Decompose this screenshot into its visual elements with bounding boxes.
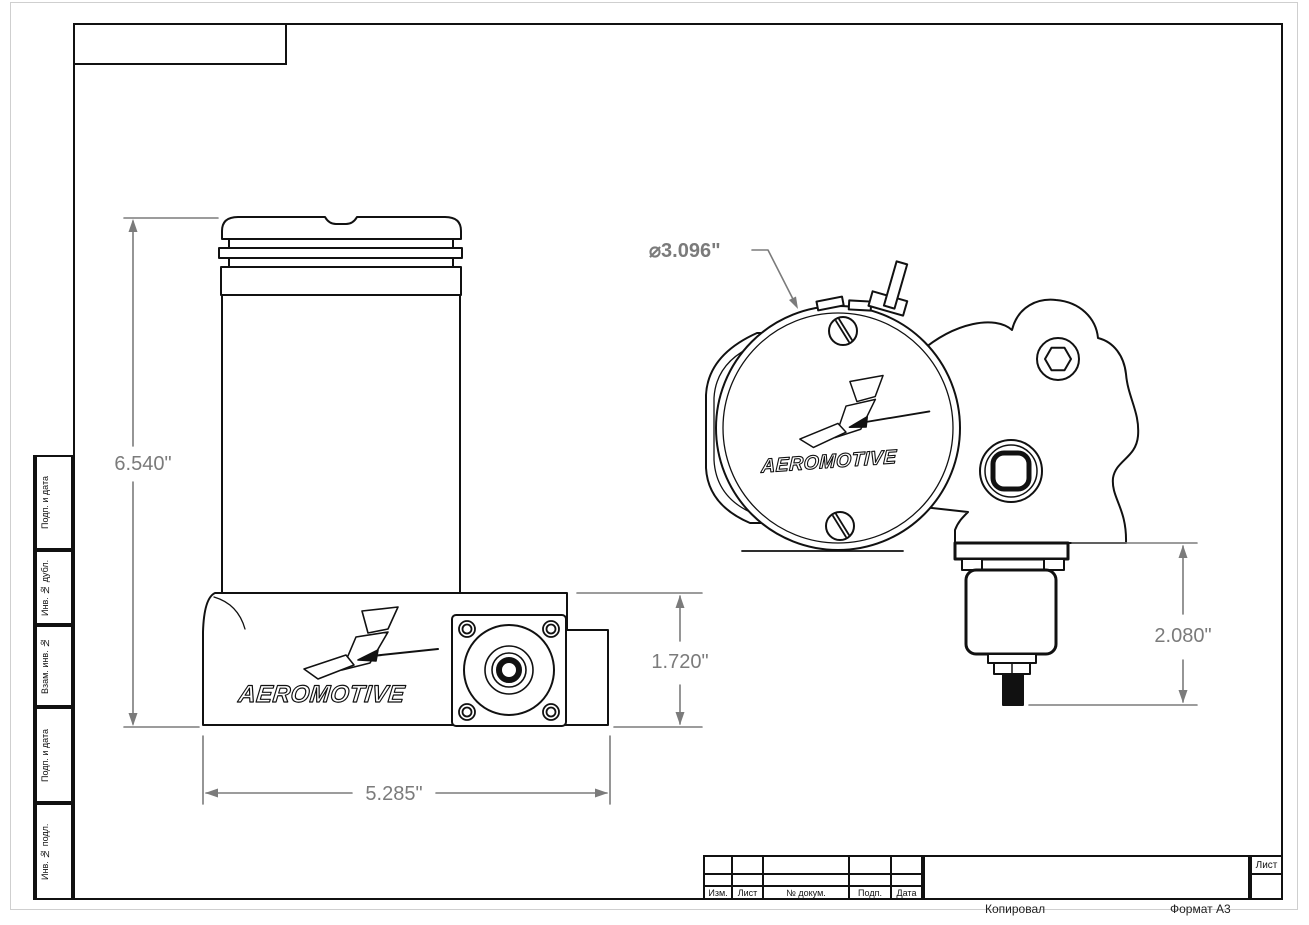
- dim-valve-height-label: 2.080": [1154, 625, 1211, 647]
- canister-body: [222, 295, 460, 593]
- brand-text-front: AEROMOTIVE: [236, 681, 406, 708]
- fitting-body: [966, 570, 1056, 654]
- canister-cap-outline: [222, 217, 461, 239]
- drawing-sheet: { "page": { "footer_copied": "Копировал"…: [0, 0, 1309, 925]
- dim-cap-diameter-label: ⌀3.096": [649, 240, 721, 262]
- fitting-flange: [955, 543, 1068, 559]
- fitting-plate: [988, 654, 1036, 663]
- lug-bolt-hex: [1045, 348, 1071, 371]
- bottom-fitting: [955, 543, 1068, 705]
- cap-collar: [221, 267, 461, 295]
- dimension-cap-diameter: ⌀3.096": [649, 240, 798, 309]
- pump-side-view: AEROMOTIVE: [706, 261, 1138, 705]
- fitting-stud: [1003, 674, 1023, 705]
- dim-base-height-label: 1.720": [651, 651, 708, 673]
- cap-ring-3: [229, 258, 453, 267]
- fitting-tab-right: [1044, 559, 1064, 570]
- pump-front-view: AEROMOTIVE: [203, 217, 608, 726]
- inlet-port-square: [993, 453, 1029, 489]
- technical-drawing: AEROMOTIVE: [0, 0, 1309, 925]
- screw-top: [829, 317, 857, 345]
- screw-bottom: [826, 512, 854, 540]
- dimension-base-width: 5.285": [203, 736, 610, 805]
- cap-ring-1: [229, 239, 453, 248]
- cap-ring-2: [219, 248, 462, 258]
- fitting-tab-left: [962, 559, 982, 570]
- dim-overall-height-label: 6.540": [114, 453, 171, 475]
- dim-base-width-label: 5.285": [365, 783, 422, 805]
